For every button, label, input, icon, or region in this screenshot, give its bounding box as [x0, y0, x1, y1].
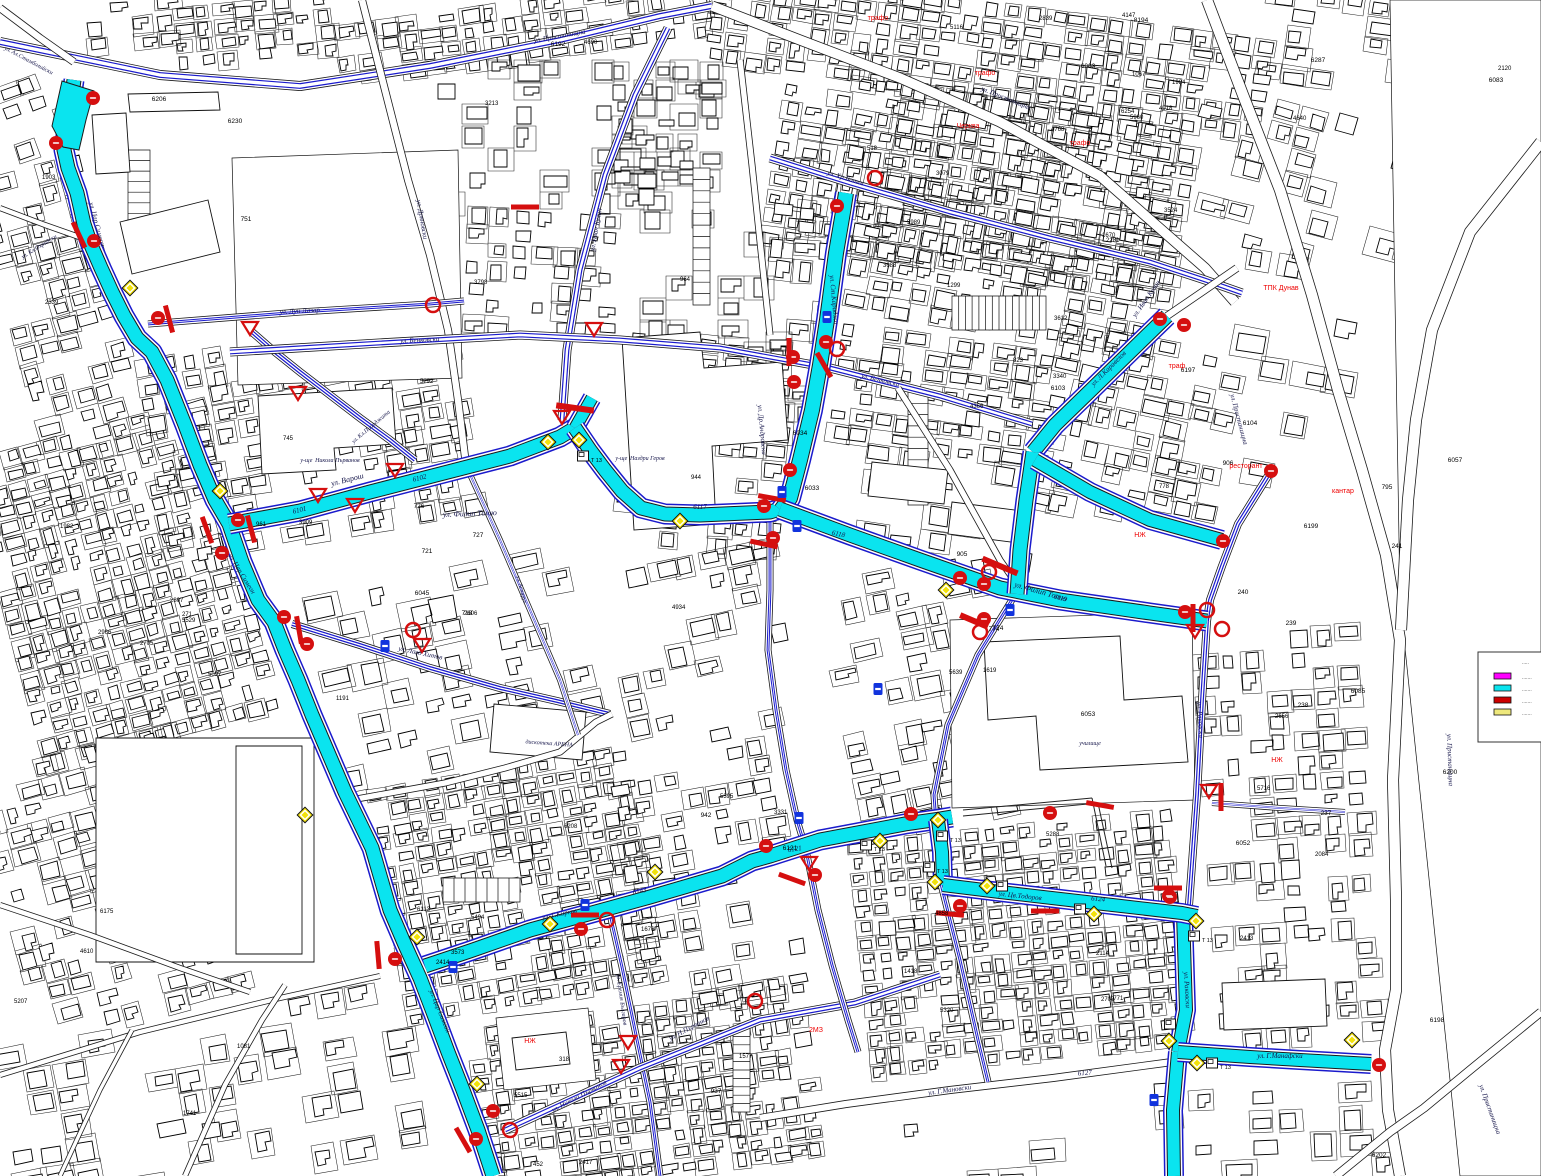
svg-text:трафо: трафо [975, 70, 996, 77]
svg-text:3079: 3079 [936, 171, 950, 177]
svg-text:452: 452 [533, 1162, 544, 1168]
svg-text:237: 237 [1321, 810, 1332, 817]
svg-text:.......: ....... [1522, 699, 1532, 705]
svg-text:778: 778 [1159, 484, 1170, 490]
svg-text:6103: 6103 [1051, 385, 1066, 392]
svg-text:5320: 5320 [940, 1008, 954, 1014]
svg-text:5989: 5989 [907, 220, 921, 226]
svg-text:6206: 6206 [152, 96, 167, 103]
svg-text:721: 721 [422, 548, 433, 555]
svg-text:6063: 6063 [1081, 63, 1096, 70]
svg-text:5515: 5515 [514, 1093, 528, 1099]
svg-text:2807: 2807 [170, 598, 184, 604]
svg-text:774: 774 [993, 625, 1004, 632]
svg-text:5639: 5639 [949, 670, 963, 676]
svg-text:6208: 6208 [564, 824, 578, 830]
svg-text:6127: 6127 [1078, 1068, 1093, 1077]
svg-text:239: 239 [1286, 620, 1297, 627]
svg-text:6053: 6053 [1081, 711, 1096, 718]
svg-text:2656: 2656 [1275, 714, 1289, 720]
svg-text:ресторант: ресторант [1229, 463, 1263, 470]
svg-text:6104: 6104 [1243, 420, 1258, 427]
svg-text:4768: 4768 [1051, 127, 1065, 133]
svg-text:1982: 1982 [60, 524, 74, 530]
svg-text:у-ще Никола Първанов: у-ще Никола Първанов [299, 458, 360, 464]
svg-text:3213: 3213 [485, 101, 499, 107]
svg-text:ТПК Дунав: ТПК Дунав [1263, 285, 1298, 292]
svg-text:5716: 5716 [1257, 786, 1271, 792]
svg-text:4610: 4610 [80, 949, 94, 955]
svg-text:.....: ..... [1522, 660, 1529, 666]
svg-text:трафо: трафо [868, 15, 889, 22]
svg-text:1418: 1418 [904, 969, 918, 975]
svg-text:1741: 1741 [183, 1111, 197, 1117]
svg-text:кантар: кантар [1332, 488, 1354, 495]
svg-text:3340: 3340 [1053, 374, 1067, 380]
svg-text:5960: 5960 [1130, 115, 1144, 121]
svg-text:2705: 2705 [140, 641, 154, 647]
svg-text:3909: 3909 [299, 520, 313, 526]
svg-text:6121: 6121 [783, 845, 798, 852]
svg-text:6175: 6175 [100, 909, 114, 915]
svg-text:НЖ: НЖ [1134, 532, 1146, 539]
svg-text:4934: 4934 [672, 605, 686, 611]
svg-text:6192: 6192 [551, 41, 566, 48]
svg-text:3573: 3573 [451, 950, 465, 956]
svg-text:у-ще Наздри Геров: у-ще Наздри Геров [614, 455, 665, 462]
svg-text:4147: 4147 [1122, 13, 1136, 19]
svg-text:5097: 5097 [208, 672, 222, 678]
svg-text:4640: 4640 [1293, 116, 1307, 122]
svg-text:2417: 2417 [579, 1160, 593, 1166]
svg-text:2703: 2703 [1101, 997, 1115, 1003]
svg-text:823: 823 [1013, 358, 1024, 364]
svg-text:745: 745 [283, 436, 294, 442]
svg-text:6034: 6034 [793, 430, 808, 437]
svg-text:2414: 2414 [436, 960, 450, 966]
svg-text:5288: 5288 [1046, 832, 1060, 838]
svg-text:1067: 1067 [1132, 72, 1146, 78]
svg-text:4918: 4918 [1159, 106, 1173, 112]
svg-text:6198: 6198 [1430, 1017, 1445, 1024]
svg-text:240: 240 [1238, 589, 1249, 596]
svg-text:2114: 2114 [1096, 951, 1110, 957]
svg-text:318: 318 [559, 1057, 570, 1063]
svg-text:6287: 6287 [1311, 57, 1326, 64]
svg-text:1577: 1577 [739, 1054, 753, 1060]
svg-text:4690: 4690 [584, 40, 598, 46]
svg-text:5116: 5116 [950, 25, 964, 31]
svg-text:905: 905 [957, 551, 968, 558]
svg-text:1676: 1676 [641, 927, 655, 933]
svg-text:ул. Г.Манафски: ул. Г.Манафски [1256, 1052, 1303, 1060]
svg-text:T 13: T 13 [1220, 1065, 1231, 1071]
svg-text:6113: 6113 [417, 907, 431, 913]
svg-text:траф: траф [1169, 363, 1186, 370]
svg-text:4858: 4858 [935, 911, 949, 917]
svg-text:944: 944 [691, 475, 702, 481]
svg-text:Черква: Черква [956, 123, 979, 130]
svg-text:T 13: T 13 [591, 458, 602, 464]
svg-text:6057: 6057 [1448, 457, 1463, 464]
svg-text:6199: 6199 [1304, 523, 1319, 530]
svg-text:T 13: T 13 [1202, 938, 1213, 944]
svg-text:6085: 6085 [1351, 688, 1366, 695]
svg-text:6230: 6230 [228, 118, 243, 125]
svg-text:.......: ....... [1522, 687, 1532, 693]
svg-text:942: 942 [701, 812, 712, 819]
svg-text:6052: 6052 [1236, 840, 1251, 847]
svg-text:5494: 5494 [471, 915, 485, 921]
svg-text:ул. Филип Тотю: ул. Филип Тотю [442, 508, 498, 519]
svg-text:T 13: T 13 [950, 838, 961, 844]
svg-text:3524: 3524 [1164, 208, 1178, 214]
svg-text:241: 241 [1392, 543, 1403, 550]
svg-text:3688: 3688 [883, 263, 897, 269]
svg-text:4366: 4366 [970, 404, 984, 410]
svg-text:2606: 2606 [464, 611, 478, 617]
svg-text:3798: 3798 [474, 280, 488, 286]
svg-text:1670: 1670 [1102, 233, 1116, 239]
svg-text:6200: 6200 [1443, 769, 1458, 776]
svg-text:1984: 1984 [1172, 80, 1186, 86]
svg-text:училище: училище [1078, 741, 1101, 747]
svg-text:1081: 1081 [237, 1044, 251, 1050]
svg-text:.......: ....... [1522, 675, 1532, 681]
svg-text:5395: 5395 [720, 794, 734, 800]
svg-text:3612: 3612 [1054, 316, 1068, 322]
svg-text:6083: 6083 [1489, 77, 1504, 84]
svg-text:T 13: T 13 [874, 847, 885, 853]
svg-text:6033: 6033 [805, 485, 820, 492]
svg-text:НЖ: НЖ [524, 1038, 536, 1045]
svg-text:2084: 2084 [1315, 852, 1329, 858]
svg-text:2839: 2839 [1039, 16, 1053, 22]
svg-text:3331: 3331 [774, 810, 788, 816]
svg-text:2120: 2120 [1498, 66, 1512, 72]
svg-text:трафо: трафо [1070, 140, 1091, 147]
svg-text:727: 727 [473, 532, 484, 539]
svg-text:751: 751 [241, 216, 252, 223]
svg-text:518: 518 [867, 146, 878, 152]
svg-text:961: 961 [256, 522, 267, 528]
svg-text:2МЗ: 2МЗ [809, 1027, 823, 1034]
svg-text:6045: 6045 [415, 590, 430, 597]
svg-text:5529: 5529 [182, 618, 196, 624]
svg-text:5292: 5292 [420, 379, 434, 385]
svg-text:2966: 2966 [98, 630, 112, 636]
svg-text:2339: 2339 [45, 300, 59, 306]
svg-text:964: 964 [680, 277, 691, 283]
svg-text:937: 937 [711, 1088, 722, 1095]
svg-text:1191: 1191 [336, 696, 350, 702]
svg-text:6124: 6124 [1091, 894, 1106, 903]
svg-text:НЖ: НЖ [1271, 757, 1283, 764]
svg-text:238: 238 [1298, 702, 1309, 709]
svg-text:1299: 1299 [947, 283, 961, 289]
svg-text:T 13: T 13 [937, 869, 948, 875]
svg-text:.......: ....... [1522, 711, 1532, 717]
svg-text:1619: 1619 [983, 668, 997, 674]
svg-text:8194: 8194 [1134, 17, 1149, 24]
svg-text:2413: 2413 [1240, 936, 1254, 942]
svg-text:795: 795 [1382, 484, 1393, 491]
svg-text:5207: 5207 [14, 999, 28, 1005]
svg-text:726: 726 [414, 503, 425, 510]
svg-text:1903: 1903 [42, 175, 56, 181]
svg-text:6202: 6202 [1372, 1152, 1387, 1159]
svg-text:6117: 6117 [693, 503, 707, 511]
